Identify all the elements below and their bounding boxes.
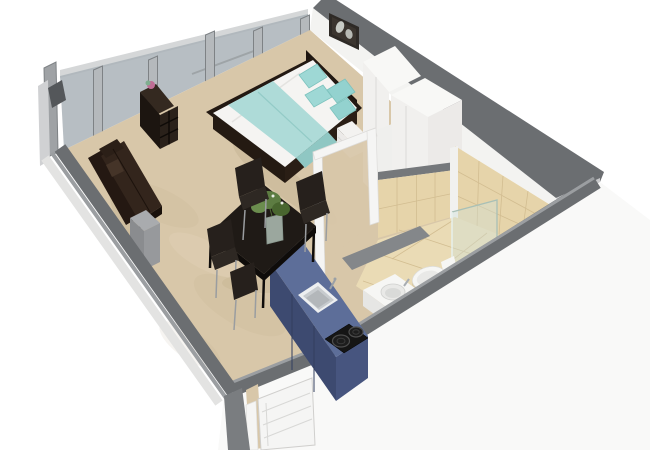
pillar-3 [206, 31, 215, 84]
corner-post-outer [38, 80, 50, 166]
floor-plan-rendering [0, 0, 650, 450]
burner-2 [349, 327, 363, 337]
chair-w-leg-1 [216, 270, 217, 298]
pillar-1 [94, 66, 103, 137]
partition-end-strip [450, 146, 458, 220]
chair-e-leg-1 [305, 224, 306, 252]
burner-1 [333, 335, 350, 347]
floor-plan-canvas [0, 0, 650, 450]
faucet-head [334, 278, 337, 281]
chair-s-leg-2 [255, 290, 256, 318]
decor-leaf [146, 81, 151, 86]
flower-1 [272, 195, 275, 198]
basin-inner [385, 288, 401, 298]
flower-2 [281, 202, 284, 205]
chair-e-leg-2 [326, 213, 327, 241]
vase [266, 214, 283, 244]
chair-n-leg-2 [265, 199, 266, 228]
